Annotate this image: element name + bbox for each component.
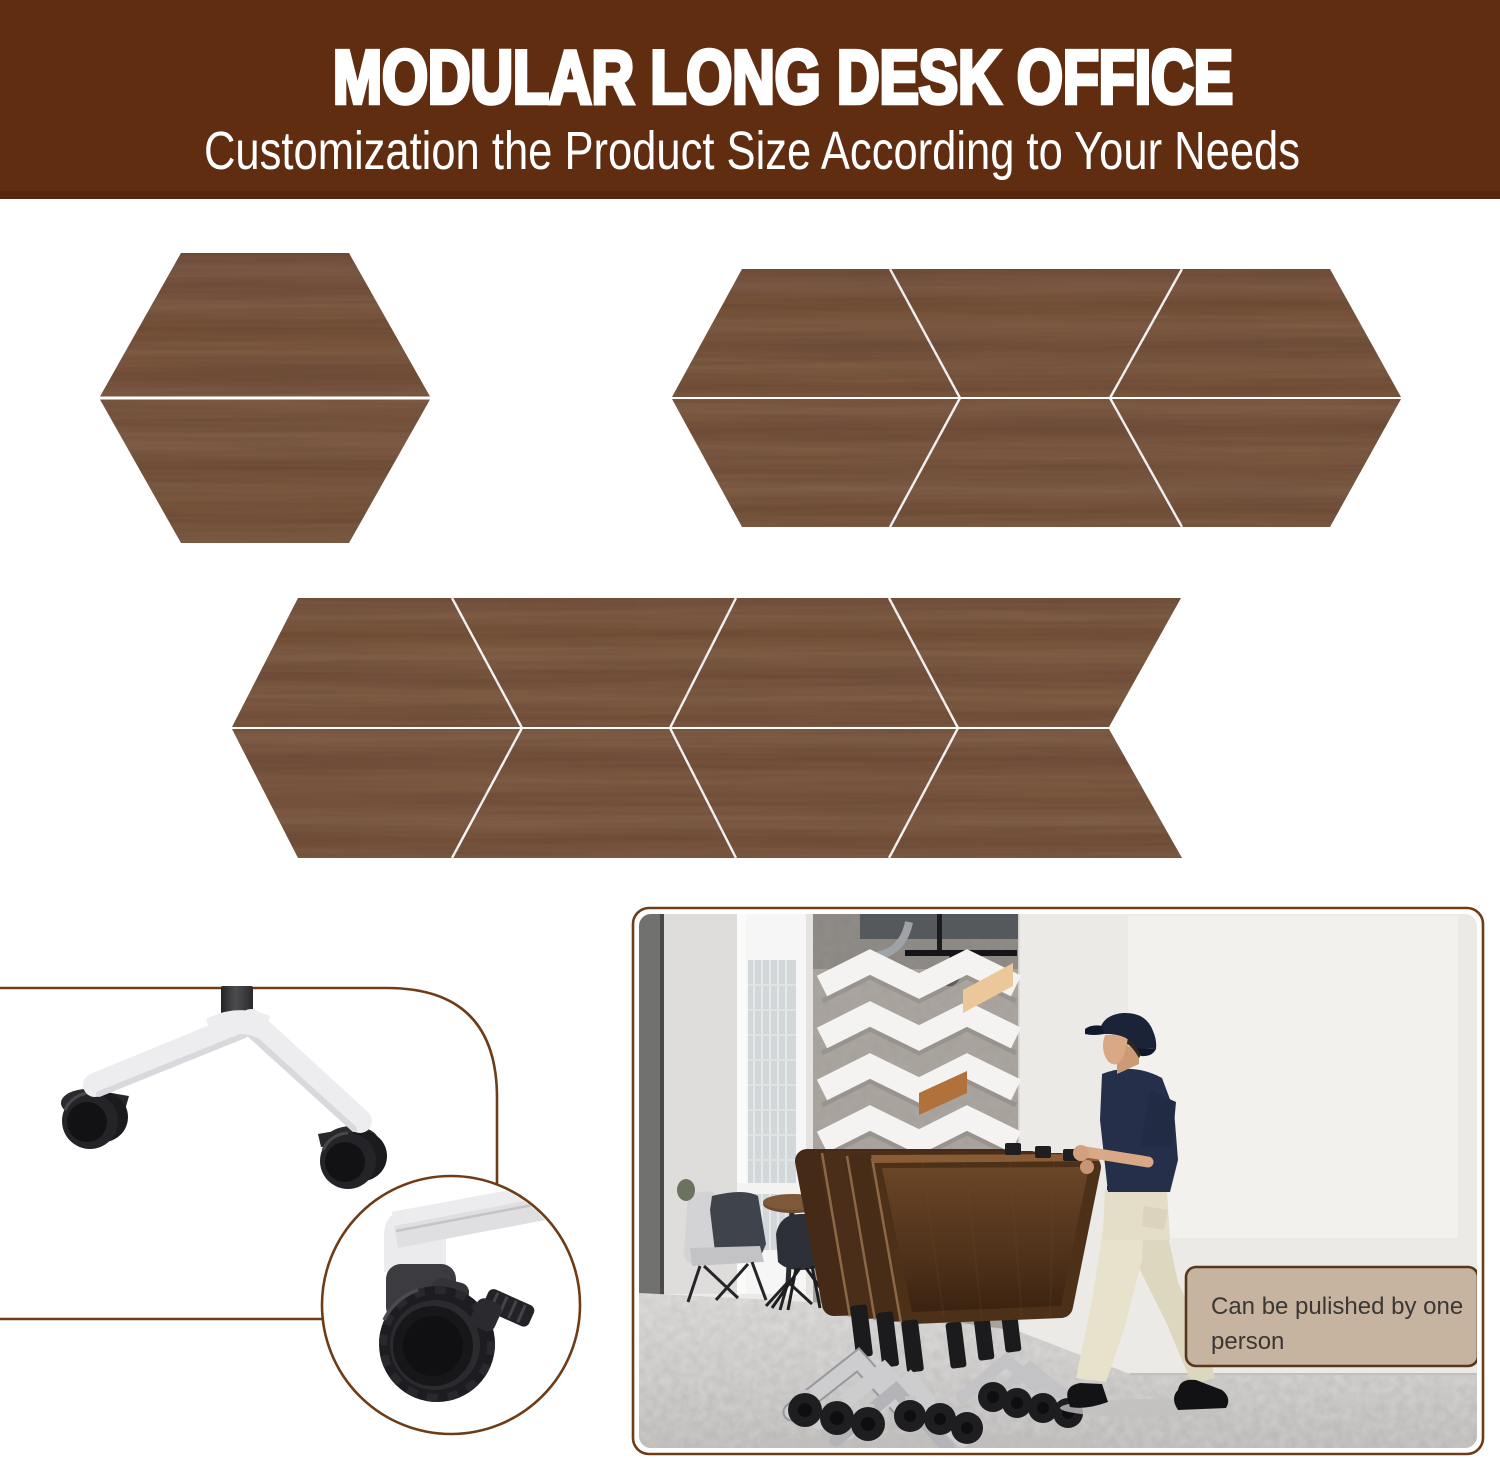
svg-text:MODULAR LONG DESK OFFICE: MODULAR LONG DESK OFFICE: [333, 35, 1233, 119]
svg-text:Can be pulished by one: Can be pulished by one: [1211, 1293, 1463, 1320]
svg-text:person: person: [1211, 1328, 1284, 1355]
svg-text:Customization the Product Size: Customization the Product Size According…: [204, 121, 1300, 181]
